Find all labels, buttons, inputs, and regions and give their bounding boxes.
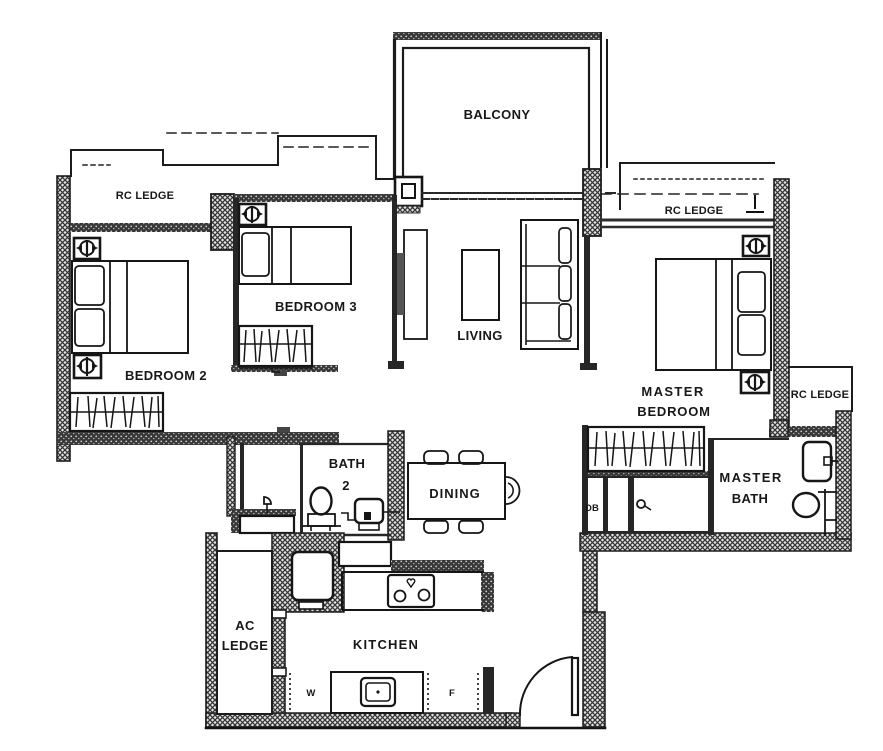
- svg-text:KITCHEN: KITCHEN: [353, 637, 419, 652]
- svg-text:BEDROOM 2: BEDROOM 2: [125, 368, 207, 383]
- svg-text:BEDROOM 3: BEDROOM 3: [275, 299, 357, 314]
- svg-text:RC LEDGE: RC LEDGE: [791, 389, 849, 401]
- svg-text:DB: DB: [585, 503, 599, 514]
- svg-text:BALCONY: BALCONY: [464, 107, 531, 122]
- svg-text:BEDROOM: BEDROOM: [637, 404, 711, 419]
- svg-text:RC LEDGE: RC LEDGE: [665, 205, 723, 217]
- svg-text:AC: AC: [235, 618, 255, 633]
- svg-text:LEDGE: LEDGE: [222, 638, 269, 653]
- svg-text:DINING: DINING: [429, 486, 481, 501]
- svg-text:W: W: [306, 688, 315, 699]
- svg-text:2: 2: [342, 478, 350, 493]
- svg-text:RC LEDGE: RC LEDGE: [116, 190, 174, 202]
- svg-text:F: F: [449, 688, 455, 699]
- svg-text:LIVING: LIVING: [457, 328, 502, 343]
- svg-text:BATH: BATH: [732, 491, 769, 506]
- svg-text:MASTER: MASTER: [641, 384, 704, 399]
- svg-text:BATH: BATH: [329, 456, 366, 471]
- svg-text:MASTER: MASTER: [719, 470, 782, 485]
